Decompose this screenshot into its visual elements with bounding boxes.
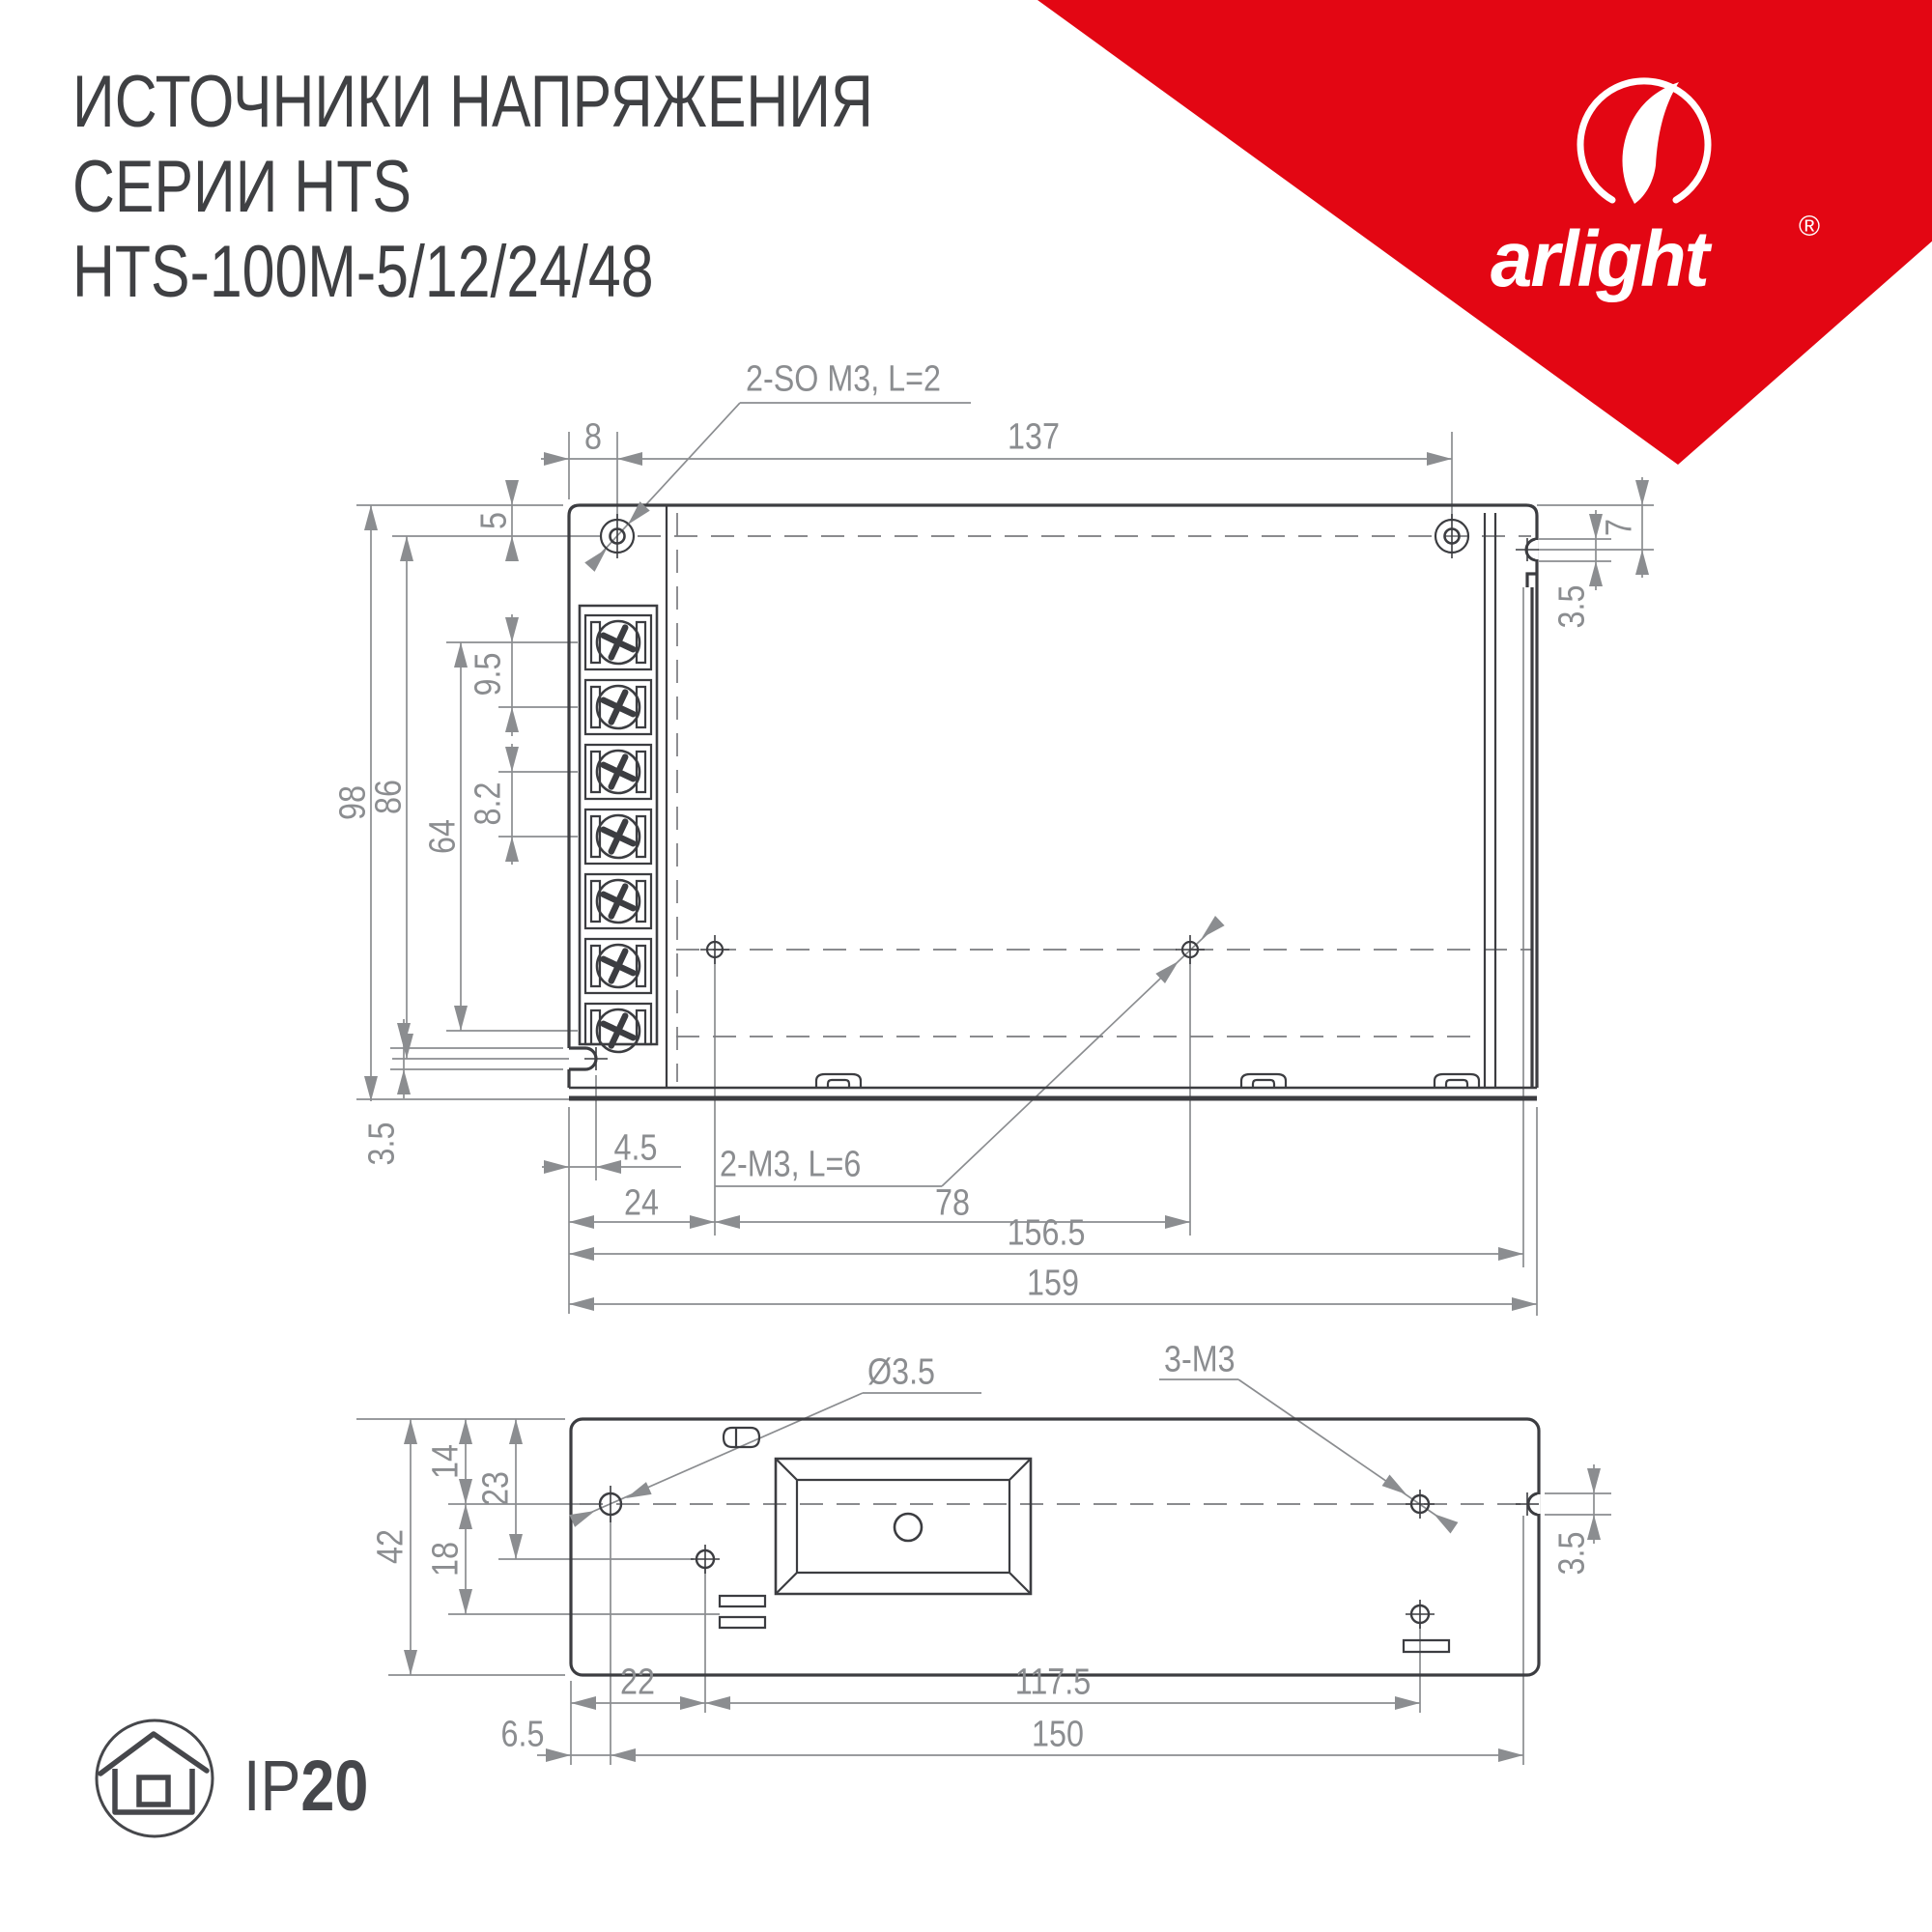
dim-bv-150: 150 (1032, 1715, 1084, 1756)
dim-centerline-span: 86 (369, 780, 411, 814)
dim-hole-span: 137 (1008, 417, 1060, 459)
callout-so-m3: 2-SO M3, L=2 (746, 359, 941, 401)
dim-right-top-7: 7 (1600, 519, 1641, 536)
dim-bv-14: 14 (426, 1444, 468, 1479)
dim-bv-18: 18 (426, 1542, 468, 1577)
dim-width-159: 159 (1027, 1264, 1079, 1305)
dim-terminal-span: 64 (423, 819, 465, 854)
callout-dia35: Ø3.5 (867, 1352, 935, 1394)
ip-rating: IP20 (243, 1745, 368, 1827)
dim-bv-right-35: 3.5 (1552, 1532, 1594, 1576)
dimension-arrows (364, 452, 1649, 1762)
callout-2m3: 2-M3, L=6 (720, 1145, 861, 1186)
centerlines (580, 513, 1531, 1504)
dim-bv-1175: 117.5 (1015, 1662, 1091, 1704)
top-view-holes (584, 514, 1539, 1070)
technical-drawing (0, 0, 1932, 1932)
dim-edge-centerline: 5 (474, 512, 516, 529)
terminal-screws (585, 615, 651, 1052)
dim-slot-depth-45: 4.5 (614, 1128, 658, 1170)
dim-bv-23: 23 (476, 1471, 518, 1506)
ip20-house-icon (93, 1717, 218, 1842)
dim-slot-center-x: 156.5 (1008, 1213, 1086, 1255)
dim-hole-offset-x: 8 (584, 417, 602, 459)
callout-3m3: 3-M3 (1164, 1340, 1236, 1381)
ip-prefix: IP (243, 1746, 300, 1826)
dimension-lines (356, 403, 1654, 1765)
dim-height-98: 98 (333, 785, 375, 820)
ip-value: 20 (300, 1746, 368, 1826)
dim-right-slot-35: 3.5 (1552, 585, 1594, 629)
dim-left-slot-35: 3.5 (362, 1122, 404, 1166)
dim-bv-22: 22 (620, 1662, 655, 1704)
dim-hole1-x-24: 24 (624, 1183, 659, 1225)
dim-screw-pitch-2: 8.2 (469, 782, 510, 826)
dim-screw-pitch-1: 9.5 (469, 653, 510, 696)
dim-hole-span-78: 78 (935, 1183, 970, 1225)
dim-bv-65: 6.5 (501, 1715, 545, 1756)
dim-bv-42: 42 (371, 1529, 412, 1564)
